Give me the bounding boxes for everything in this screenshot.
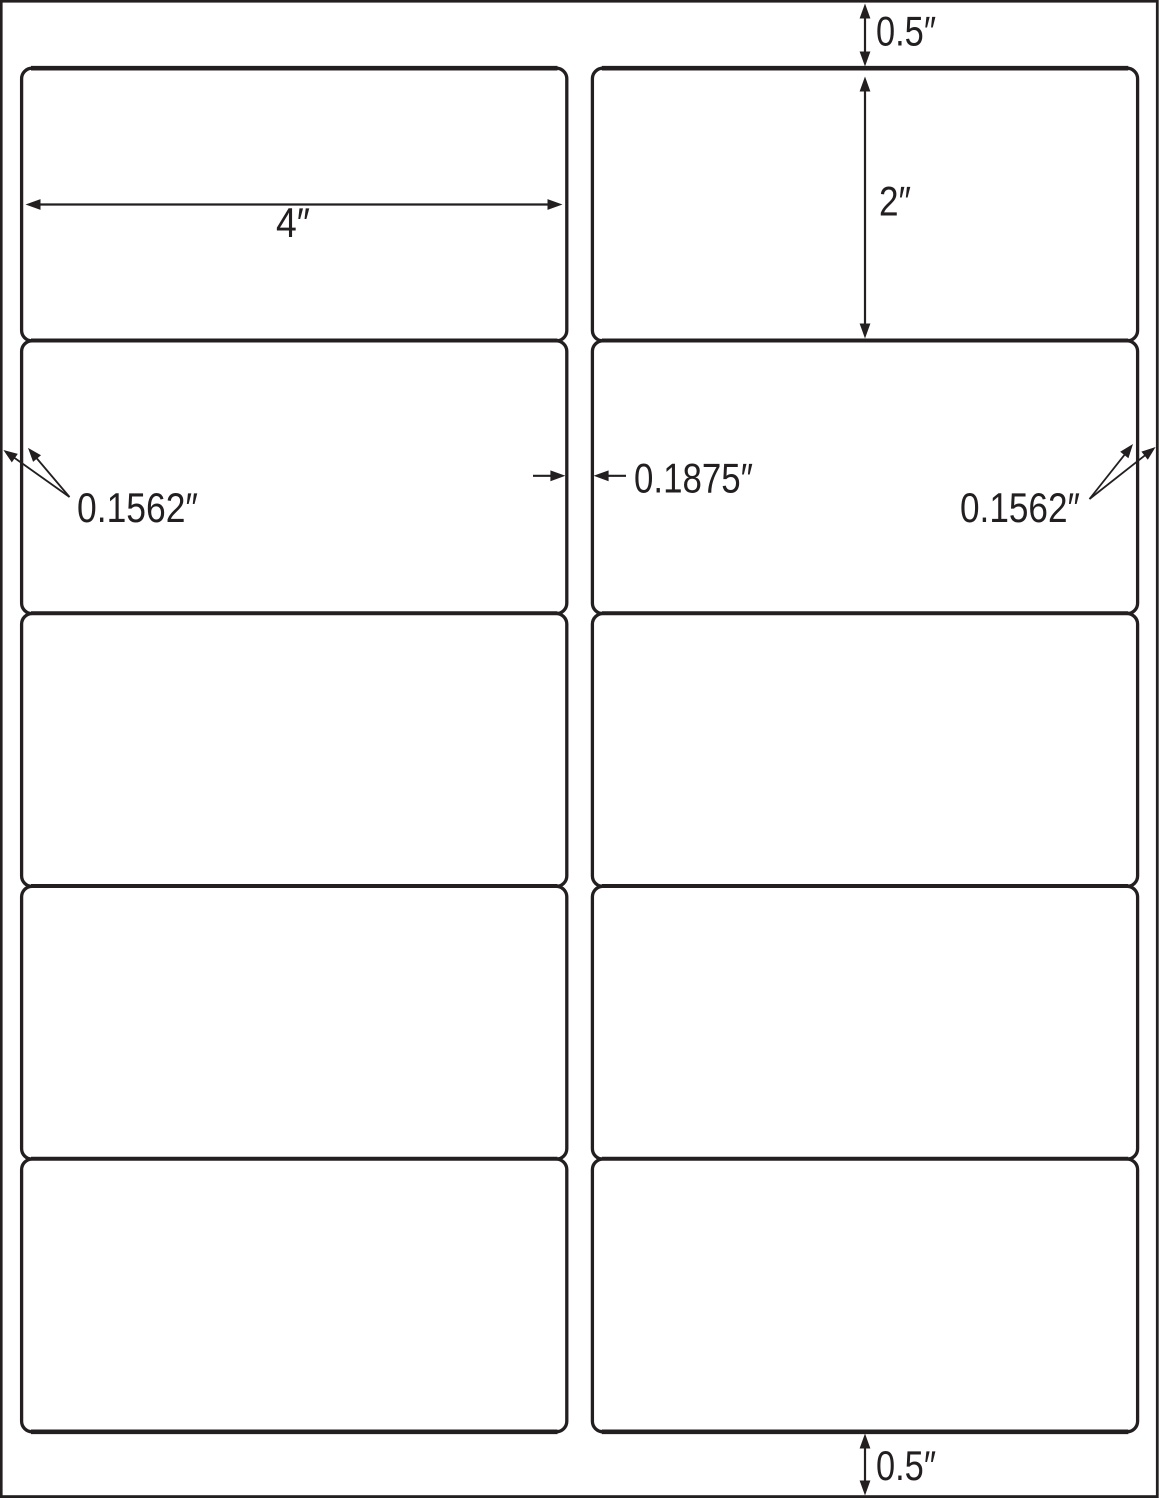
svg-text:2″: 2″ [879, 178, 911, 225]
svg-text:0.1562″: 0.1562″ [77, 484, 198, 531]
svg-text:0.5″: 0.5″ [876, 8, 936, 55]
svg-text:0.1875″: 0.1875″ [634, 455, 753, 502]
svg-text:0.5″: 0.5″ [876, 1442, 936, 1489]
svg-text:0.1562″: 0.1562″ [960, 484, 1080, 531]
svg-text:4″: 4″ [276, 199, 310, 246]
